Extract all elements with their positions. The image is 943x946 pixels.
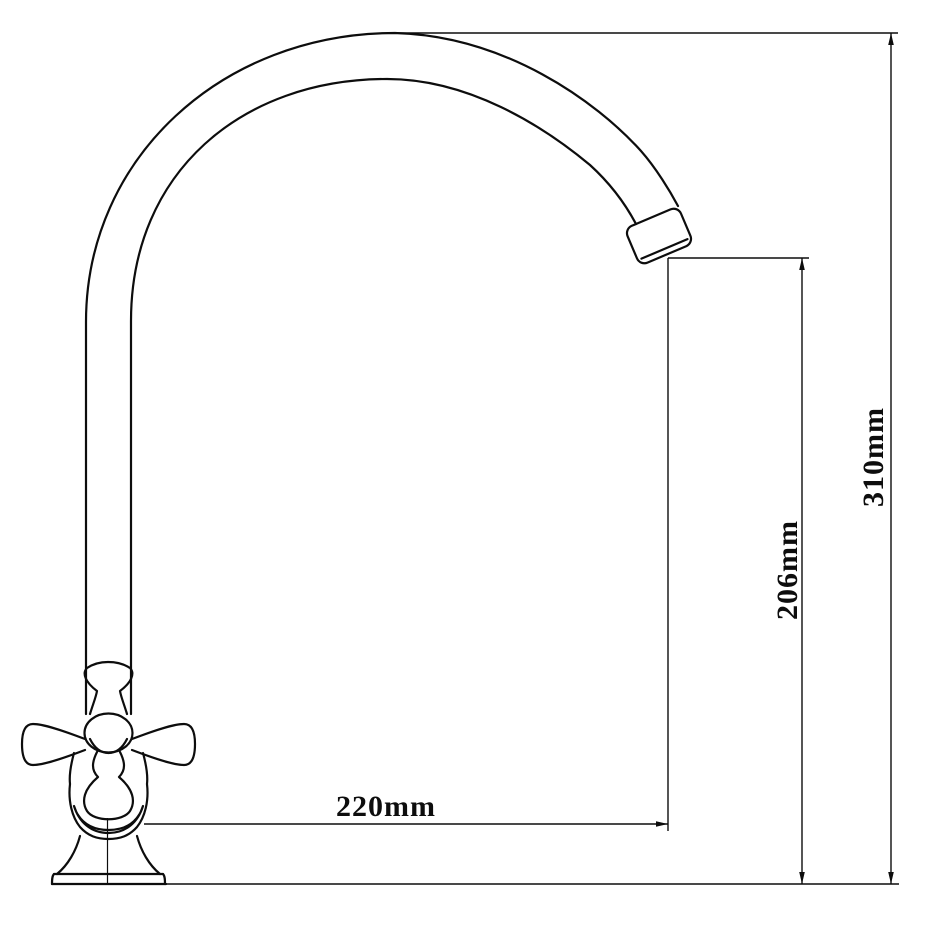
faucet-dimension-drawing: 310mm 206mm 220mm (0, 0, 943, 946)
base-band-cap-right (163, 874, 165, 884)
handle-hub (85, 714, 133, 753)
arrowhead-outlet-height-top (799, 258, 805, 270)
dimension-lines (144, 33, 899, 884)
base-flange-left (57, 836, 80, 874)
base-band-cap-left (52, 874, 54, 884)
aerator-body (624, 206, 693, 265)
handle-left-arm (22, 724, 85, 765)
base-flange-right (137, 836, 160, 874)
handle-top-grip (85, 662, 133, 714)
technical-drawing-canvas: 310mm 206mm 220mm (0, 0, 943, 946)
valve-bell-rim-line-2 (78, 815, 139, 830)
spout-outer-contour (86, 33, 678, 714)
faucet-outline (22, 33, 694, 884)
dimension-label-outlet-height: 206mm (771, 520, 804, 620)
arrowhead-total-height-top (888, 33, 894, 45)
dimension-label-spout-reach: 220mm (336, 790, 436, 823)
spout-inner-contour (131, 79, 636, 714)
dimension-label-total-height: 310mm (857, 407, 890, 507)
arrowhead-outlet-height-bottom (799, 872, 805, 884)
handle-right-arm (132, 724, 195, 765)
aerator-nozzle (624, 206, 693, 265)
handle-front-grip (84, 752, 133, 819)
arrowhead-total-height-bottom (888, 872, 894, 884)
valve-bell (69, 753, 147, 839)
arrowhead-spout-reach-right (656, 821, 668, 827)
handle-hub-inner-line (90, 739, 127, 753)
